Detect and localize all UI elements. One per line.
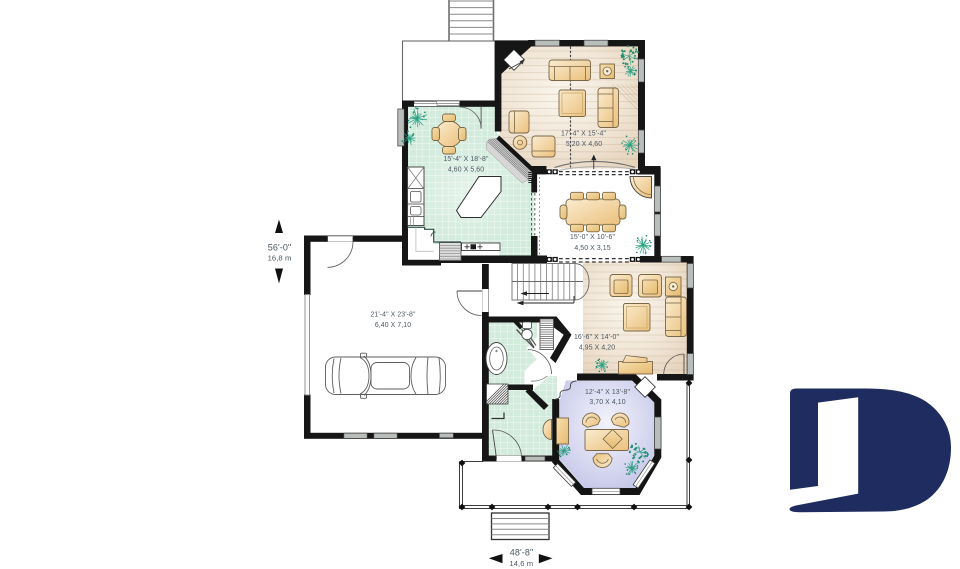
svg-text:3,70 X 4,10: 3,70 X 4,10 bbox=[589, 399, 625, 406]
svg-text:6,40 X 7,10: 6,40 X 7,10 bbox=[375, 322, 411, 329]
svg-text:17'-4" X 15'-4": 17'-4" X 15'-4" bbox=[561, 131, 606, 138]
svg-text:15'-4" X 18'-8": 15'-4" X 18'-8" bbox=[443, 156, 488, 163]
svg-text:21'-4" X 23'-8": 21'-4" X 23'-8" bbox=[370, 312, 415, 319]
svg-text:15'-0" X 10'-6": 15'-0" X 10'-6" bbox=[570, 234, 615, 241]
svg-text:56'-0": 56'-0" bbox=[268, 243, 292, 253]
svg-text:12'-4" X 13'-8": 12'-4" X 13'-8" bbox=[585, 389, 630, 396]
svg-text:4,50 X 3,15: 4,50 X 3,15 bbox=[574, 245, 610, 252]
svg-text:16,8 m: 16,8 m bbox=[268, 254, 292, 263]
svg-text:4,60 X 5,60: 4,60 X 5,60 bbox=[448, 167, 484, 174]
svg-text:14,6 m: 14,6 m bbox=[509, 559, 533, 568]
svg-text:16'-6" X 14'-0": 16'-6" X 14'-0" bbox=[574, 334, 619, 341]
svg-text:48'-8": 48'-8" bbox=[510, 548, 534, 558]
svg-text:5,20 X 4,60: 5,20 X 4,60 bbox=[566, 141, 602, 148]
svg-text:4,95 X 4,20: 4,95 X 4,20 bbox=[579, 345, 615, 352]
